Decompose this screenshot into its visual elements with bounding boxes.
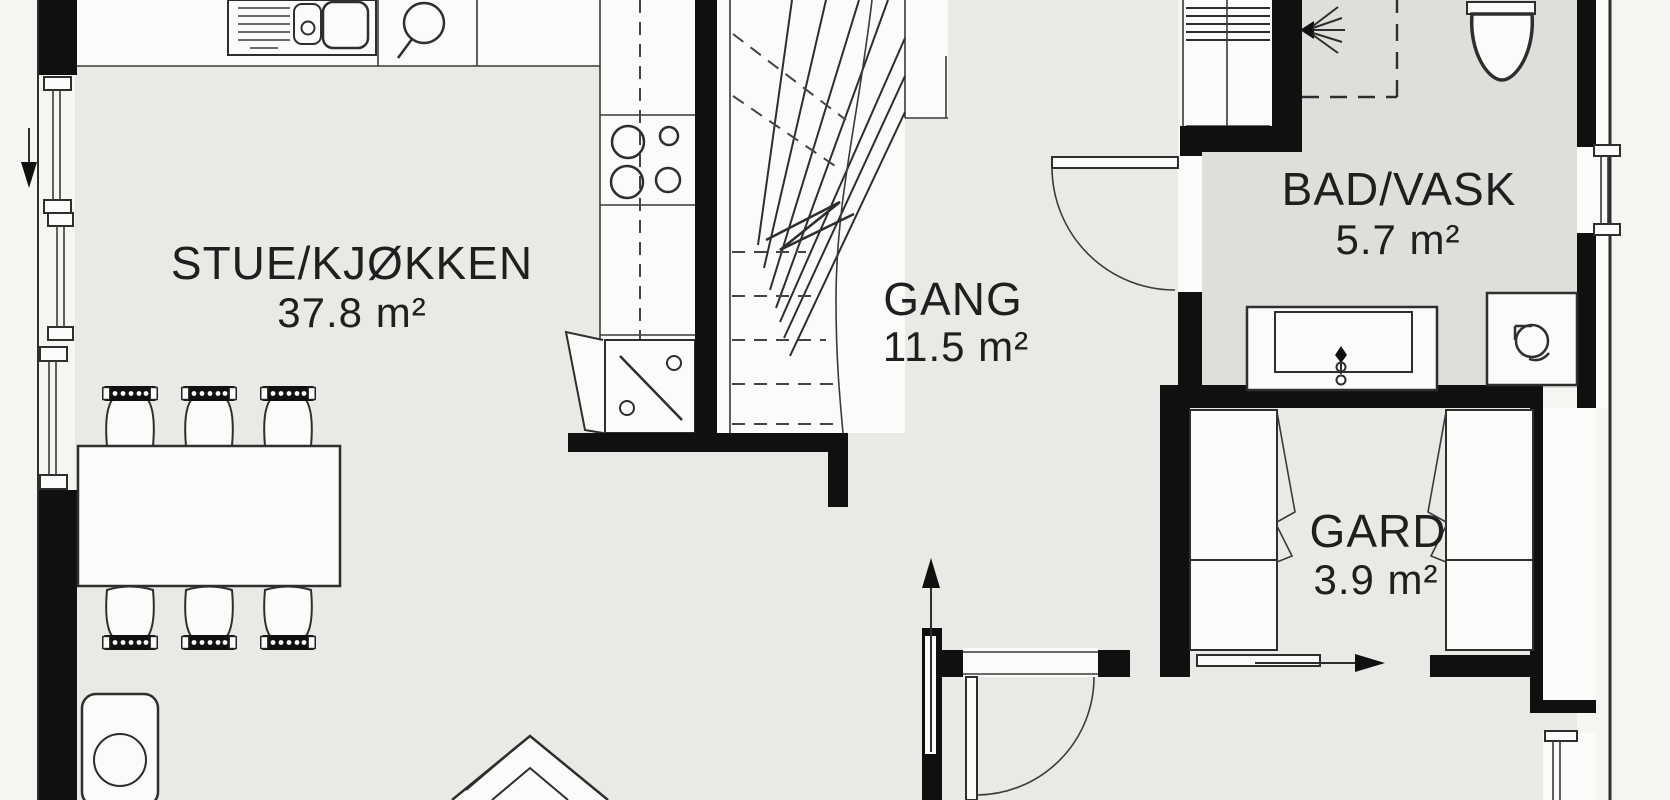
floor-bottom-right-room <box>1190 677 1577 800</box>
kitchen-sink <box>228 0 376 55</box>
floor-plan-drawing: STUE/KJØKKEN 37.8 m² GANG 11.5 m² BAD/VA… <box>0 0 1670 800</box>
armchair <box>82 694 158 800</box>
dining-table <box>78 446 340 586</box>
vanity-sink <box>1247 307 1437 390</box>
floor-entry-room <box>922 677 1190 800</box>
area-bad-vask: 5.7 m² <box>1335 216 1460 263</box>
washing-machine <box>1487 293 1577 385</box>
floor-plan: STUE/KJØKKEN 37.8 m² GANG 11.5 m² BAD/VA… <box>0 0 1670 800</box>
area-stue-kjokken: 37.8 m² <box>277 289 426 336</box>
label-stue-kjokken: STUE/KJØKKEN <box>171 237 533 289</box>
window-bottom-right <box>1543 731 1596 800</box>
label-bad-vask: BAD/VASK <box>1282 163 1517 215</box>
area-gang: 11.5 m² <box>883 323 1029 370</box>
label-gard: GARD <box>1310 505 1447 557</box>
hall-closet <box>1183 0 1272 126</box>
area-gard: 3.9 m² <box>1313 556 1438 603</box>
label-gang: GANG <box>883 273 1022 325</box>
dishwasher <box>566 332 695 433</box>
